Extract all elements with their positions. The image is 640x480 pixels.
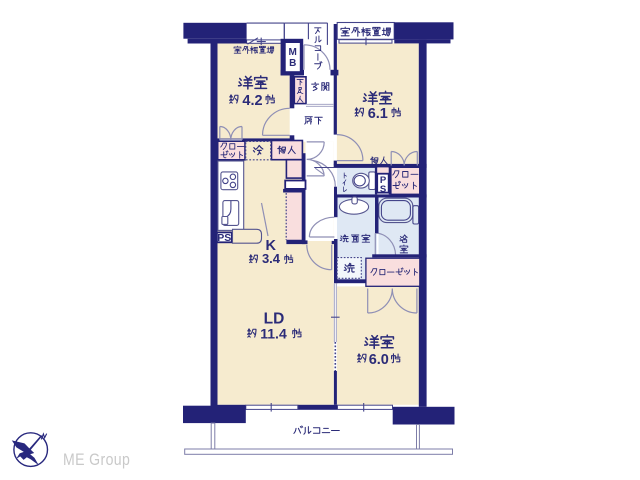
svg-text:4.2: 4.2 (242, 93, 262, 109)
svg-text:3.4: 3.4 (262, 251, 281, 266)
svg-text:S: S (380, 184, 386, 195)
svg-text:PS: PS (217, 232, 231, 244)
svg-text:11.4: 11.4 (260, 326, 287, 342)
svg-text:B: B (289, 58, 296, 69)
svg-text:6.1: 6.1 (368, 106, 388, 122)
svg-text:ME Group: ME Group (63, 451, 130, 469)
svg-text:6.0: 6.0 (369, 352, 389, 368)
svg-text:M: M (289, 47, 297, 58)
